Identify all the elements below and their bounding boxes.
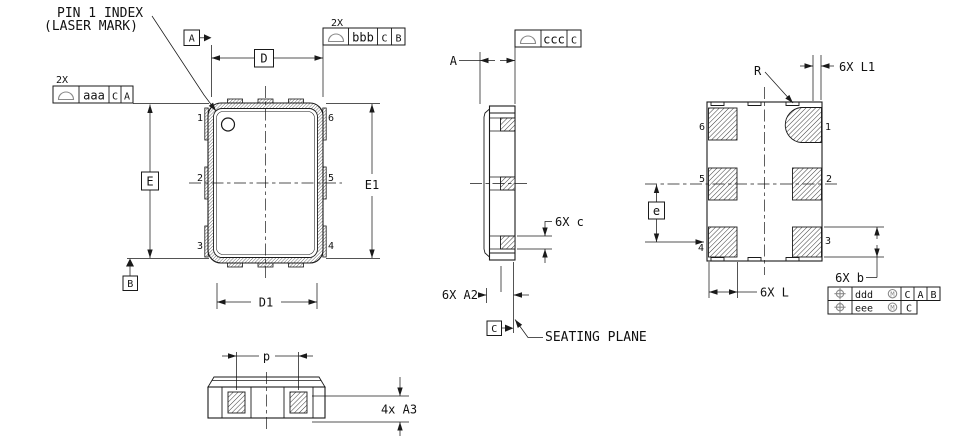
- dim-label: D: [260, 52, 267, 66]
- pin-label: 6: [328, 113, 334, 124]
- pin1-note-line2: (LASER MARK): [44, 19, 138, 34]
- pin-label: 4: [698, 243, 704, 254]
- pin-label: 2: [826, 174, 832, 185]
- dim-label: p: [263, 350, 270, 364]
- dim-label: 6X b: [835, 271, 864, 285]
- pin-label: 5: [328, 173, 334, 184]
- svg-text:M: M: [890, 290, 894, 298]
- pad-3: [793, 227, 822, 257]
- fcf-qty: 2X: [56, 75, 68, 86]
- fcf-eee: eee M C: [828, 301, 917, 315]
- pin-label: 5: [699, 174, 705, 185]
- top-view: 1 2 3 6 5 4: [189, 86, 342, 281]
- fcf-qty: 2X: [331, 18, 343, 29]
- fcf-datum-ref: B: [930, 290, 936, 301]
- dim-label: E1: [365, 178, 379, 192]
- pad-6: [709, 108, 738, 140]
- fcf-datum-ref: C: [906, 304, 912, 315]
- pad-4: [709, 227, 738, 257]
- dim-label: e: [653, 204, 660, 218]
- fcf-tolerance: eee: [855, 304, 873, 315]
- dim-label: E: [146, 175, 153, 189]
- dim-label: 6X A2: [442, 288, 478, 302]
- dim-label: R: [754, 64, 762, 78]
- dim-label: 6X L1: [839, 60, 875, 74]
- fcf-tolerance: bbb: [352, 31, 374, 45]
- fcf-datum-ref: C: [381, 34, 387, 45]
- dim-label: D1: [259, 296, 273, 310]
- dim-label: 6X L: [760, 286, 789, 300]
- svg-text:M: M: [890, 304, 894, 312]
- pin-label: 1: [197, 113, 203, 124]
- fcf-datum-ref: A: [124, 92, 130, 103]
- datum-label: A: [189, 34, 195, 45]
- pin-label: 1: [825, 122, 831, 133]
- fcf-datum-ref: C: [904, 290, 910, 301]
- dim-label: 6X c: [555, 215, 584, 229]
- fcf-datum-ref: C: [571, 36, 577, 47]
- datum-label: C: [491, 324, 497, 335]
- seating-plane-label: SEATING PLANE: [545, 330, 647, 345]
- datum-label: B: [127, 279, 133, 290]
- pin-label: 3: [825, 236, 831, 247]
- pin-label: 3: [197, 241, 203, 252]
- fcf-datum-ref: A: [917, 290, 923, 301]
- pin-label: 2: [197, 173, 203, 184]
- fcf-ccc: ccc C: [515, 30, 581, 47]
- fcf-tolerance: ddd: [855, 290, 873, 301]
- pin-label: 6: [699, 122, 705, 133]
- fcf-datum-ref: B: [395, 34, 401, 45]
- pin1-mark: [222, 118, 235, 131]
- fcf-datum-ref: C: [112, 92, 118, 103]
- dim-label: 4x A3: [381, 403, 417, 417]
- pin-label: 4: [328, 241, 334, 252]
- fcf-ddd: ddd M C A B: [828, 287, 940, 301]
- pad-1: [785, 108, 821, 143]
- package-outline-drawing: 1 2 3 6 5 4 PIN 1 INDEX (LASER MARK) 2X …: [0, 0, 965, 436]
- fcf-tolerance: aaa: [83, 89, 105, 103]
- fcf-tolerance: ccc: [543, 33, 565, 47]
- dim-label: A: [450, 54, 458, 68]
